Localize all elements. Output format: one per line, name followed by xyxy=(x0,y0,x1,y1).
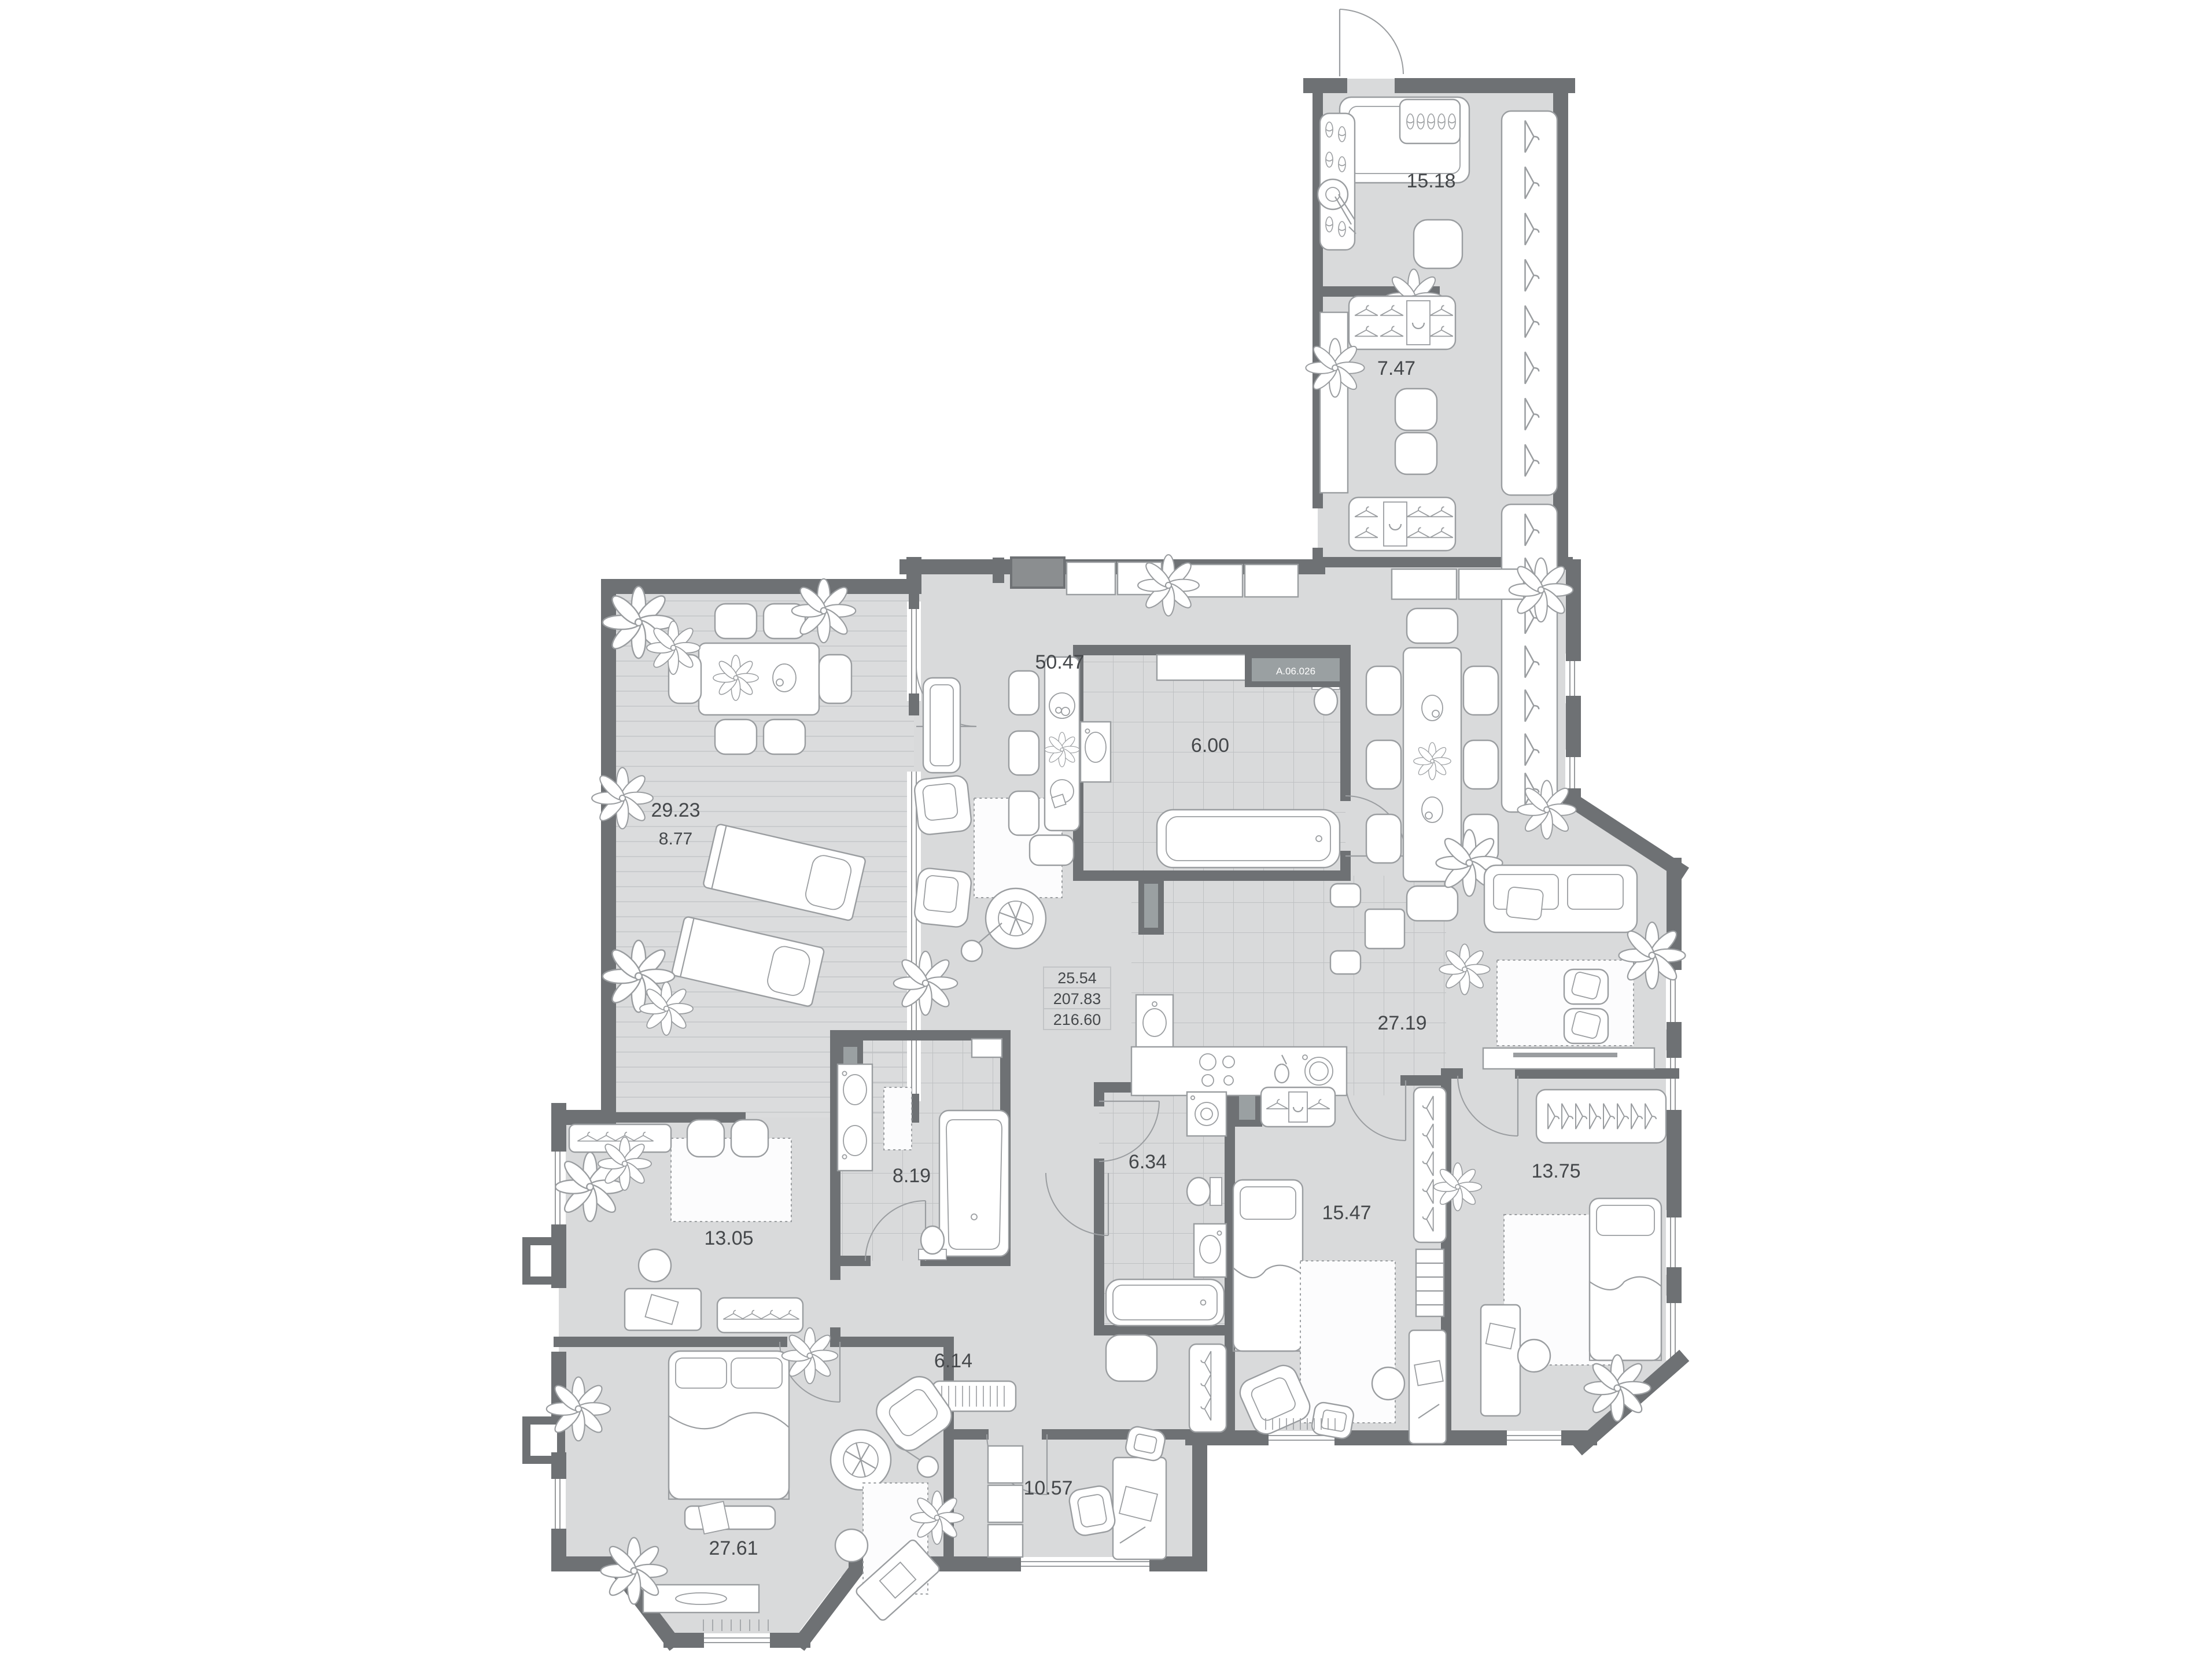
washing-machine xyxy=(1187,1092,1226,1136)
area-summary: 25.54 207.83 216.60 xyxy=(1044,967,1111,1030)
summary-row-3: 216.60 xyxy=(1053,1011,1101,1028)
label-terrace-reduced: 8.77 xyxy=(659,829,692,848)
label-terrace-total: 29.23 xyxy=(651,799,700,821)
toilet xyxy=(1187,1178,1222,1205)
single-bed xyxy=(1590,1198,1661,1360)
floor-plan-page: A.06.026 xyxy=(0,0,2212,1664)
unit-badge-text: A.06.026 xyxy=(1276,666,1315,677)
label-kitchen-lounge: 27.19 xyxy=(1377,1012,1426,1034)
label-master-bedroom: 27.61 xyxy=(709,1537,758,1559)
label-bathroom-guest: 6.34 xyxy=(1129,1151,1167,1173)
papasan-chair xyxy=(986,888,1046,949)
label-bedroom-two: 13.75 xyxy=(1531,1160,1580,1182)
bathtub xyxy=(939,1110,1009,1256)
label-bathroom-main: 8.19 xyxy=(893,1165,931,1187)
label-entrance-hall: 15.18 xyxy=(1406,170,1455,192)
unit-badge: A.06.026 xyxy=(1245,652,1347,687)
entry-door xyxy=(1340,9,1403,76)
double-bed xyxy=(669,1351,789,1499)
summary-row-2: 207.83 xyxy=(1053,990,1101,1008)
summary-row-1: 25.54 xyxy=(1057,969,1097,987)
single-bed xyxy=(1233,1180,1303,1351)
label-hallway: 6.14 xyxy=(934,1350,972,1372)
papasan-chair xyxy=(831,1430,891,1490)
terrace-glazing xyxy=(907,602,921,1101)
label-wardrobe-hall: 7.47 xyxy=(1377,357,1415,379)
label-study: 10.57 xyxy=(1023,1477,1072,1499)
label-living-dining: 50.47 xyxy=(1035,651,1084,673)
label-dressing-room: 13.05 xyxy=(704,1227,753,1249)
label-bedroom-one: 15.47 xyxy=(1322,1202,1371,1224)
label-bathroom-ensuite: 6.00 xyxy=(1191,735,1229,757)
floor-plan-drawing: A.06.026 xyxy=(0,0,2212,1664)
toilet xyxy=(919,1226,946,1260)
